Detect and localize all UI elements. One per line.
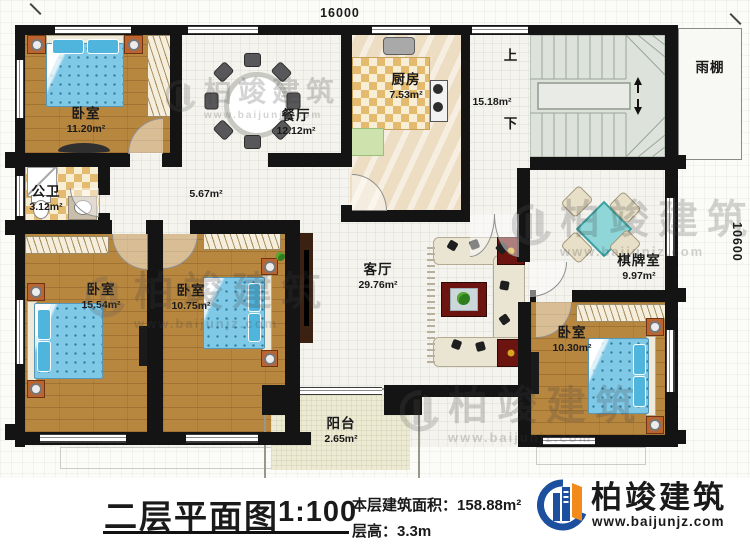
pillow-icon: [52, 39, 84, 54]
plant-icon: [276, 252, 285, 261]
window: [40, 434, 126, 443]
plant-icon: [457, 292, 470, 305]
kitchen-mat-icon: [348, 128, 384, 156]
balcony-sliding-door: [300, 387, 382, 395]
nightstand-icon: [124, 35, 143, 54]
window: [666, 330, 675, 392]
tv-icon: [304, 250, 309, 326]
wall-pier: [5, 220, 15, 235]
brand-logo-icon: [533, 477, 587, 539]
wall-pier: [678, 288, 686, 302]
toilet-icon: [33, 200, 49, 219]
floor-height-line: 层高：3.3m: [352, 520, 431, 541]
burner-icon: [433, 84, 443, 94]
brand-name: 柏竣建筑: [591, 482, 727, 513]
wall-bedroommid-north: [190, 220, 300, 234]
wall-pier: [5, 424, 15, 440]
dining-chair-icon: [244, 135, 261, 149]
pillow-icon: [37, 309, 51, 340]
floor-area-line: 本层建筑面积：158.88m²: [352, 494, 521, 515]
wall-bedroomtl-south: [162, 153, 182, 167]
wall-dining-south: [268, 153, 348, 167]
dimension-height: 10600: [730, 222, 744, 262]
dimension-width: 16000: [308, 6, 372, 20]
floor-area-value: 158.88m²: [457, 497, 521, 514]
shower-icon: [27, 167, 57, 197]
balcony-pier-right: [384, 385, 422, 415]
wall-bedroom-divider: [147, 220, 163, 432]
window: [543, 437, 595, 445]
wall-bathroom-south: [15, 220, 112, 234]
nightstand-icon: [646, 318, 664, 336]
burner-icon: [433, 102, 443, 112]
wall-bedroomtl-south: [15, 153, 130, 167]
wardrobe-icon: [147, 35, 172, 117]
wall-kitchen-east: [461, 25, 470, 222]
window: [188, 26, 258, 34]
staircase-icon: [530, 35, 665, 157]
wall-chess-south: [572, 290, 678, 302]
wall-kitchen-west: [341, 25, 352, 167]
wardrobe-icon: [25, 236, 109, 254]
window: [16, 300, 24, 364]
dim-tick: [29, 3, 41, 15]
canopy-area: [678, 28, 742, 160]
tv-icon: [139, 326, 147, 366]
wall-kitchen-south: [341, 210, 470, 222]
nightstand-icon: [27, 35, 46, 54]
roof-edge-line: [536, 447, 646, 465]
dining-chair-icon: [205, 93, 219, 110]
floor-height-label: 层高：: [352, 523, 397, 540]
window: [16, 176, 24, 216]
pillow-icon: [633, 344, 646, 375]
plan-scale: 1:100: [278, 496, 357, 529]
wall-bathroom-east: [98, 165, 110, 195]
window: [472, 26, 528, 34]
wardrobe-icon: [203, 232, 281, 250]
floor-height-value: 3.3m: [397, 523, 431, 540]
tv-icon: [531, 352, 539, 394]
wall-bedroommid-east: [285, 220, 300, 432]
dim-tick: [729, 13, 741, 25]
window: [16, 60, 24, 118]
wall-living-south: [420, 385, 531, 397]
wall-bottom-right: [518, 435, 678, 447]
sofa-fringe: [427, 243, 435, 363]
nightstand-icon: [261, 350, 278, 367]
kitchen-sink-icon: [383, 37, 415, 55]
dining-chair-icon: [244, 53, 261, 67]
window: [372, 26, 430, 34]
wall-pier: [678, 430, 686, 444]
floor-plan-canvas: 雨棚: [0, 0, 750, 545]
nightstand-icon: [27, 283, 45, 301]
wall-stairs-south: [530, 157, 665, 170]
cushion-icon: [499, 280, 509, 290]
pillow-icon: [248, 283, 261, 312]
nightstand-icon: [646, 416, 664, 434]
pillow-icon: [87, 39, 119, 54]
wall-bedroomtl-dining: [170, 25, 182, 167]
kitchen-tile-area: [352, 57, 430, 130]
pillow-icon: [248, 313, 261, 342]
wall-bedroombr-west: [518, 302, 531, 447]
nightstand-icon: [261, 258, 278, 275]
pillow-icon: [37, 341, 51, 372]
window: [186, 434, 258, 443]
title-underline: [103, 531, 349, 534]
rug-icon: [58, 143, 110, 153]
dining-chair-icon: [287, 93, 301, 110]
wall-pier: [678, 155, 686, 169]
nightstand-icon: [27, 380, 45, 398]
floor-area-label: 本层建筑面积：: [352, 497, 457, 514]
brand-url: www.baijunjz.com: [592, 514, 725, 529]
pillow-icon: [633, 376, 646, 407]
window: [666, 198, 675, 256]
window: [55, 26, 131, 34]
wall-pier: [5, 152, 15, 168]
